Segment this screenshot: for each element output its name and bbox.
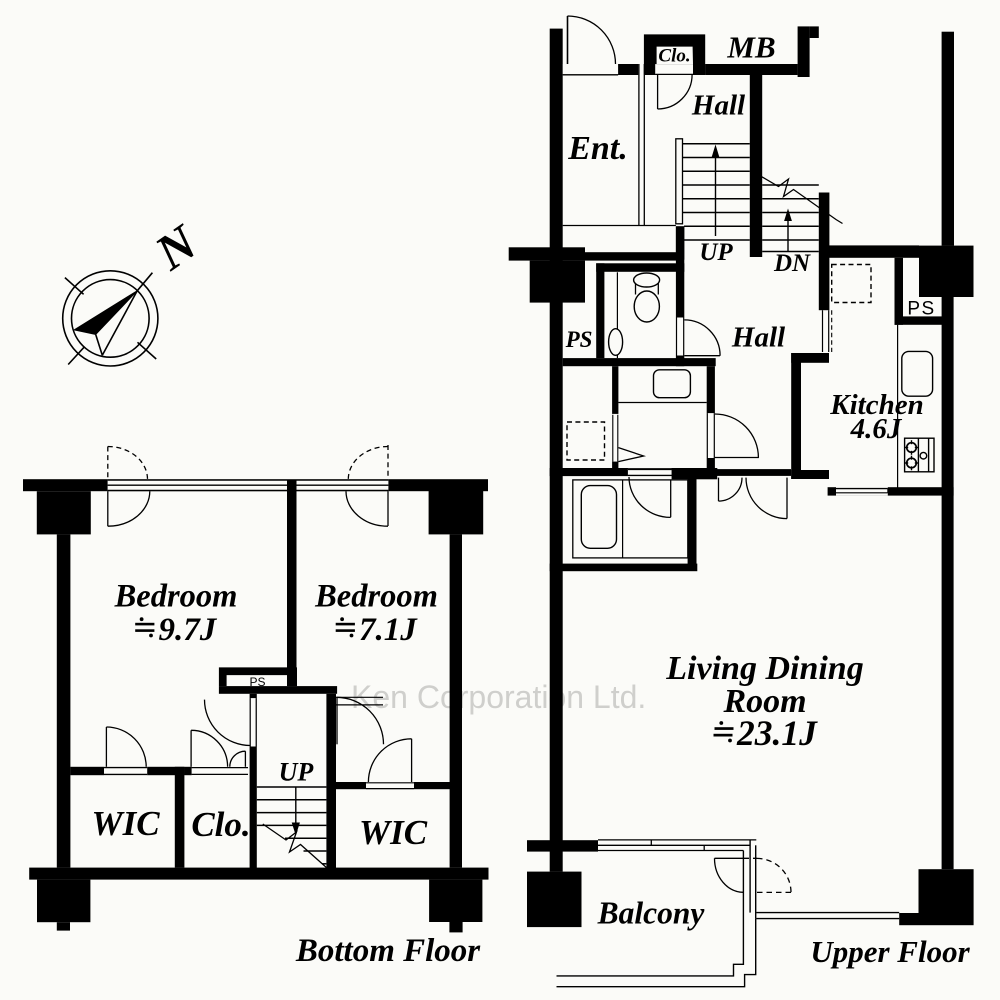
svg-text:Balcony: Balcony <box>597 896 706 931</box>
svg-text:Bottom Floor: Bottom Floor <box>295 933 481 969</box>
svg-text:Bedroom: Bedroom <box>314 579 438 615</box>
svg-text:UP: UP <box>279 758 315 787</box>
svg-text:Hall: Hall <box>731 322 786 354</box>
svg-text:DN: DN <box>773 250 811 277</box>
svg-text:Ent.: Ent. <box>567 130 628 167</box>
svg-text:23.1J: 23.1J <box>736 713 818 753</box>
svg-text:WIC: WIC <box>91 804 160 843</box>
svg-text:Clo.: Clo. <box>658 46 690 67</box>
svg-text:9.7J: 9.7J <box>159 612 218 648</box>
svg-text:4.6J: 4.6J <box>850 413 903 445</box>
svg-text:PS: PS <box>907 299 935 320</box>
svg-text:Clo.: Clo. <box>191 805 250 844</box>
svg-text:7.1J: 7.1J <box>359 612 418 648</box>
svg-text:Bedroom: Bedroom <box>114 579 238 615</box>
svg-text:UP: UP <box>699 239 733 266</box>
svg-text:Living Dining: Living Dining <box>665 650 863 687</box>
svg-text:Hall: Hall <box>691 90 746 122</box>
svg-text:PS: PS <box>565 327 593 352</box>
svg-text:Ken Corporation Ltd.: Ken Corporation Ltd. <box>351 679 646 715</box>
svg-text:MB: MB <box>726 30 775 65</box>
svg-text:Upper Floor: Upper Floor <box>810 934 970 969</box>
svg-text:WIC: WIC <box>359 813 428 852</box>
